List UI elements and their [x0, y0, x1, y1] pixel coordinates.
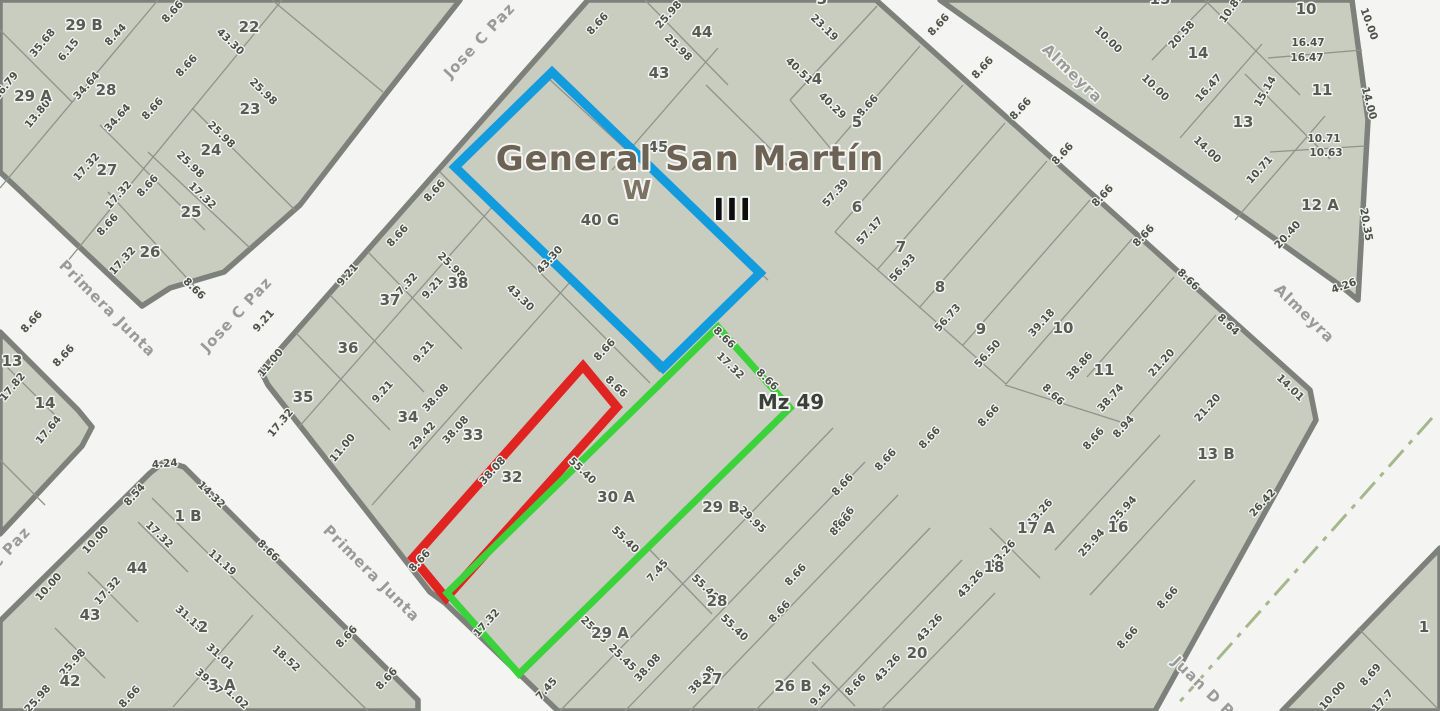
parcel-label-14[interactable]: 14	[1188, 44, 1209, 62]
parcel-label-28[interactable]: 28	[96, 81, 117, 99]
parcel-label-29-a[interactable]: 29 A	[591, 624, 629, 642]
parcel-label-26-b[interactable]: 26 B	[774, 677, 812, 695]
parcel-label-16[interactable]: 16	[1108, 518, 1129, 536]
parcel-label-13-b[interactable]: 13 B	[1197, 445, 1235, 463]
parcel-label-3-a[interactable]: 3 A	[208, 676, 236, 694]
parcel-label-24[interactable]: 24	[201, 141, 222, 159]
parcel-label-26[interactable]: 26	[140, 243, 161, 261]
parcel-label-13[interactable]: 13	[1233, 113, 1254, 131]
parcel-label-10[interactable]: 10	[1053, 319, 1074, 337]
cadastral-map[interactable]: 35.686.158.448.6643.3016.7934.6413.808.6…	[0, 0, 1440, 711]
map-text-title: General San Martín	[496, 139, 885, 179]
parcel-label-36[interactable]: 36	[338, 339, 359, 357]
parcel-label-18[interactable]: 18	[984, 558, 1005, 576]
parcel-label-29-b[interactable]: 29 B	[702, 498, 740, 516]
parcel-label-42[interactable]: 42	[60, 672, 81, 690]
parcel-label-28[interactable]: 28	[707, 592, 728, 610]
parcel-label-11[interactable]: 11	[1094, 361, 1115, 379]
parcel-label-1-b[interactable]: 1 B	[174, 507, 201, 525]
parcel-label-43[interactable]: 43	[80, 606, 101, 624]
parcel-label-25[interactable]: 25	[181, 203, 202, 221]
map-text-manzana-label: Mz 49	[758, 390, 824, 414]
parcel-label-22[interactable]: 22	[239, 18, 260, 36]
parcel-label-34[interactable]: 34	[398, 408, 419, 426]
parcel-label-3[interactable]: 3	[817, 0, 827, 8]
parcel-label-5[interactable]: 5	[852, 113, 862, 131]
map-text-watermark-w: W	[623, 176, 652, 206]
parcel-label-35[interactable]: 35	[293, 388, 314, 406]
parcel-label-44[interactable]: 44	[127, 559, 148, 577]
parcel-label-8[interactable]: 8	[935, 278, 945, 296]
parcel-label-15[interactable]: 15	[1150, 0, 1171, 8]
parcel-label-44[interactable]: 44	[692, 23, 713, 41]
map-text-section-label: III	[713, 193, 753, 228]
parcel-label-38[interactable]: 38	[448, 274, 469, 292]
parcel-label-37[interactable]: 37	[380, 291, 401, 309]
parcel-label-2[interactable]: 2	[198, 618, 208, 636]
parcel-label-27[interactable]: 27	[702, 670, 723, 688]
parcel-label-14[interactable]: 14	[35, 394, 56, 412]
dimension-label: 10.71	[1307, 133, 1340, 145]
parcel-label-20[interactable]: 20	[907, 644, 928, 662]
parcel-label-17-a[interactable]: 17 A	[1017, 519, 1055, 537]
parcel-label-33[interactable]: 33	[463, 426, 484, 444]
parcel-label-43[interactable]: 43	[649, 64, 670, 82]
parcel-label-30-a[interactable]: 30 A	[597, 488, 635, 506]
parcel-label-7[interactable]: 7	[896, 238, 906, 256]
dimension-label: 16.47	[1291, 37, 1324, 49]
parcel-label-1[interactable]: 1	[1419, 618, 1429, 636]
parcel-label-32[interactable]: 32	[502, 468, 523, 486]
parcel-label-10[interactable]: 10	[1296, 0, 1317, 18]
parcel-label-4[interactable]: 4	[812, 70, 822, 88]
dimension-label: 16.47	[1290, 52, 1323, 64]
parcel-label-27[interactable]: 27	[97, 161, 118, 179]
parcel-label-13[interactable]: 13	[2, 352, 23, 370]
parcel-label-23[interactable]: 23	[240, 100, 261, 118]
parcel-label-9[interactable]: 9	[976, 320, 986, 338]
parcel-label-6[interactable]: 6	[852, 198, 862, 216]
parcel-label-11[interactable]: 11	[1312, 81, 1333, 99]
dimension-label: 10.63	[1309, 147, 1342, 159]
dimension-label: 4.24	[151, 457, 178, 471]
parcel-label-12-a[interactable]: 12 A	[1301, 196, 1339, 214]
parcel-label-29-a[interactable]: 29 A	[14, 87, 52, 105]
map-svg: 35.686.158.448.6643.3016.7934.6413.808.6…	[0, 0, 1440, 711]
parcel-label-40-g[interactable]: 40 G	[581, 211, 619, 229]
parcel-label-29-b[interactable]: 29 B	[65, 16, 103, 34]
